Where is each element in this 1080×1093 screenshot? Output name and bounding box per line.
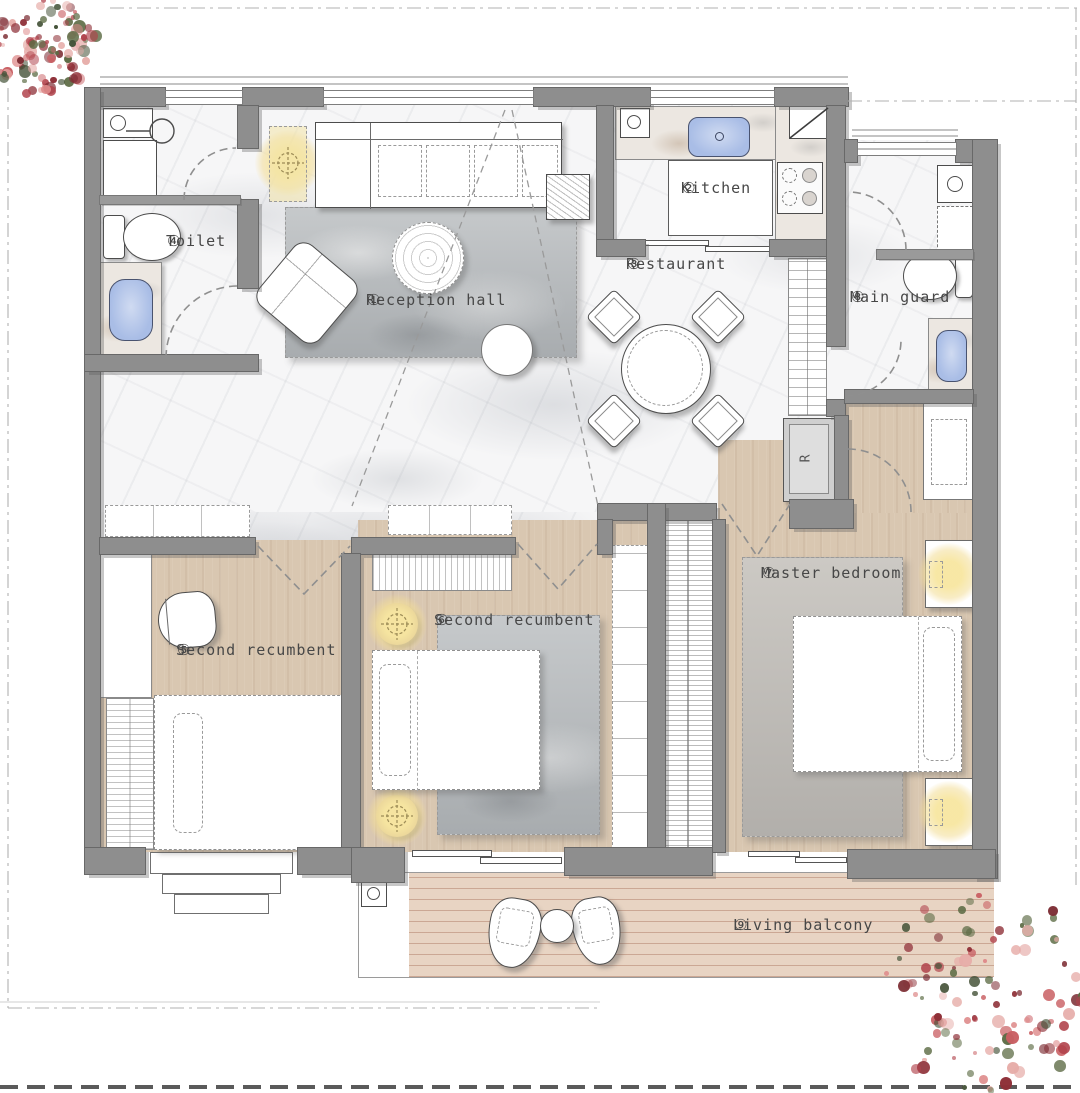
dresser-inner <box>931 419 967 485</box>
wall <box>100 538 255 554</box>
entry-dresser <box>923 403 973 500</box>
washing-machine-icon <box>937 206 973 252</box>
toilet-tank <box>103 215 125 259</box>
room-name: Kitchen <box>681 179 751 197</box>
sink-icon <box>110 115 126 131</box>
hall-console-mid <box>388 505 512 535</box>
wall-master-top <box>790 500 853 528</box>
chair-cushion <box>495 906 535 947</box>
wall <box>238 200 258 288</box>
lamp-table <box>269 126 307 202</box>
balcony-table <box>540 909 574 943</box>
table-inner-ring <box>627 330 703 406</box>
master-bed <box>793 616 962 772</box>
sofa-cushion <box>378 145 422 197</box>
exterior-mask <box>846 92 976 140</box>
kitchen-sliding-door <box>705 246 771 252</box>
master-nightstand-top <box>925 540 973 608</box>
walk-in-closet <box>663 520 713 852</box>
lamp-glow <box>918 781 980 843</box>
burner <box>802 191 817 206</box>
lamp-base <box>929 561 943 588</box>
hall-console-left <box>105 505 250 537</box>
bed-pillow <box>923 627 955 761</box>
window-guard <box>857 142 957 156</box>
bedroom5-wardrobe <box>106 698 154 850</box>
wall-right-outer <box>973 140 997 878</box>
guard-partition <box>877 250 973 259</box>
room-name: Reception hall <box>366 291 506 309</box>
room-name: Second recumbent <box>176 641 337 659</box>
window-kitchen <box>650 90 775 105</box>
washing-machine-icon <box>103 140 157 196</box>
wall <box>565 848 712 875</box>
refrigerator-icon: R <box>783 418 837 502</box>
bed-pillow <box>379 664 411 776</box>
faucet-icon <box>715 132 724 141</box>
wall <box>775 88 848 106</box>
plant-icon-top-left <box>0 0 93 95</box>
chair-cushion <box>577 906 614 945</box>
bay-window-inner <box>174 894 269 914</box>
floor-plan: R <box>0 0 1080 1093</box>
sofa-back-line <box>316 139 563 140</box>
bedroom5-desk <box>100 540 152 698</box>
guard-vanity <box>928 318 973 392</box>
laundry-sink-box <box>937 165 973 203</box>
room-name: Main guard <box>850 288 950 306</box>
nightstand-lamp <box>376 603 418 645</box>
burner <box>782 191 797 206</box>
duvet-line <box>417 651 418 791</box>
sofa-cushion <box>474 145 518 197</box>
chair-inner <box>698 297 738 337</box>
wall <box>845 140 857 162</box>
wall <box>238 106 258 148</box>
wall <box>352 848 404 882</box>
wall <box>85 355 258 371</box>
drain-icon <box>367 887 380 900</box>
wall-left-outer <box>85 88 100 868</box>
chair-inner <box>594 401 634 441</box>
wall-closet-master <box>713 520 725 852</box>
floor-drain-box <box>361 881 387 907</box>
balcony-sliding-door-master <box>748 851 800 857</box>
room-name: Toilet <box>166 232 226 250</box>
coffee-table <box>392 222 464 294</box>
wall <box>598 520 612 554</box>
duvet-line <box>918 617 919 773</box>
wall <box>845 390 973 403</box>
chair-back-line <box>165 599 170 645</box>
fridge-symbol: R <box>798 455 813 463</box>
crosshair-lamp-icon <box>380 799 414 833</box>
chair-inner <box>594 297 634 337</box>
burner <box>782 168 797 183</box>
side-table <box>546 174 590 220</box>
kitchen-small-sink <box>620 108 650 138</box>
bedroom6-bed <box>372 650 540 790</box>
kitchen-corner-shelf <box>789 105 827 139</box>
lamp-glow <box>918 543 980 605</box>
toilet-vanity <box>100 262 162 357</box>
wall <box>848 850 995 878</box>
basin-icon <box>109 279 153 341</box>
sink-icon <box>627 115 641 129</box>
burner <box>802 168 817 183</box>
wall <box>298 848 360 874</box>
balcony-sliding-door-6 <box>412 850 492 857</box>
round-stool <box>481 324 533 376</box>
wall <box>770 240 827 256</box>
bed-pillow <box>173 713 203 833</box>
crosshair-lamp-icon <box>380 607 414 641</box>
sofa-chaise-line <box>370 123 371 209</box>
master-nightstand-bottom <box>925 778 973 846</box>
sofa-cushion <box>426 145 470 197</box>
toilet-tank <box>955 254 973 298</box>
wall <box>352 538 515 554</box>
room-name: Master bedroom <box>761 564 901 582</box>
kitchen-island <box>668 160 773 236</box>
bedroom5-bed <box>154 695 350 850</box>
dining-table <box>621 324 711 414</box>
nightstand-lamp <box>376 795 418 837</box>
room-number: ⑥ <box>435 611 449 629</box>
room-name: Restaurant <box>626 255 726 273</box>
sofa <box>315 122 562 208</box>
kitchen-sink <box>688 117 750 157</box>
wall-bed5-bed6 <box>342 554 360 852</box>
toilet-sink-box <box>103 108 153 138</box>
lamp-base <box>929 799 943 826</box>
cooktop-icon <box>777 162 823 214</box>
crosshair-lamp-icon <box>271 146 305 180</box>
wall-bed6-closet <box>648 504 665 852</box>
wall <box>85 848 145 874</box>
window-reception <box>323 90 534 105</box>
wall <box>597 106 613 242</box>
chair-inner <box>698 401 738 441</box>
wall <box>597 240 645 256</box>
room-name: Second recumbent <box>434 611 595 629</box>
sink-icon <box>947 176 963 192</box>
wall <box>243 88 323 106</box>
window-toilet <box>165 90 243 105</box>
basin-icon <box>936 330 967 382</box>
plant-icon-bottom-right <box>874 880 1080 1093</box>
kitchen-sliding-door <box>643 240 709 246</box>
wine-rack <box>788 258 827 416</box>
wall <box>534 88 650 106</box>
wall <box>835 416 848 512</box>
toilet-partition <box>100 196 240 204</box>
room-name: Living balcony <box>733 916 873 934</box>
wall <box>827 400 845 416</box>
bay-window-outer <box>150 852 293 874</box>
balcony-sliding-door-6 <box>480 857 562 864</box>
bay-window-mid <box>162 874 281 894</box>
bedroom6-wardrobe <box>612 545 648 850</box>
wall <box>827 106 845 346</box>
balcony-sliding-door-master <box>795 857 847 863</box>
